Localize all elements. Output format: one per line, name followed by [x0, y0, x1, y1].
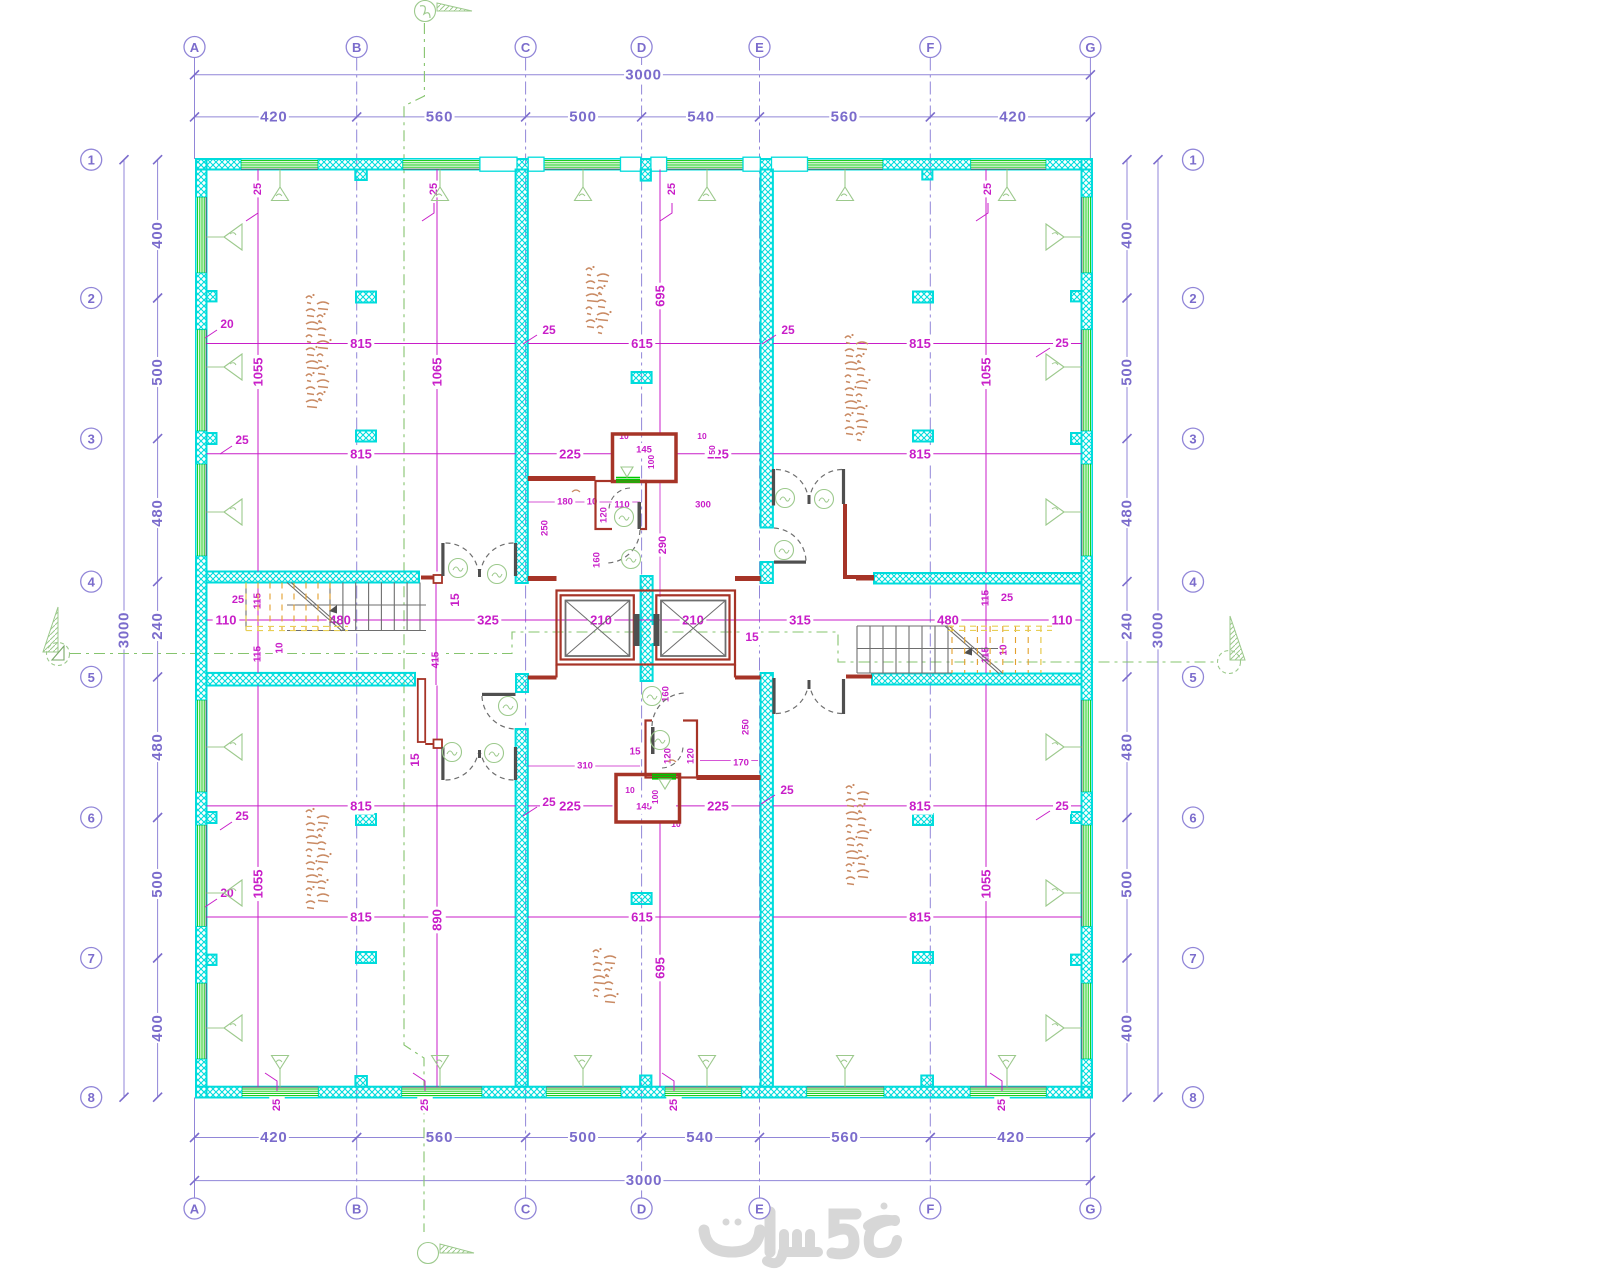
svg-text:F: F: [926, 40, 934, 55]
svg-text:8: 8: [88, 1090, 95, 1105]
svg-text:25: 25: [982, 183, 994, 195]
svg-text:815: 815: [909, 910, 931, 925]
svg-text:G: G: [1085, 1202, 1095, 1217]
svg-text:500: 500: [1119, 358, 1136, 385]
svg-text:110: 110: [1052, 613, 1073, 628]
svg-text:1055: 1055: [979, 870, 994, 899]
svg-text:480: 480: [149, 733, 166, 760]
svg-text:4: 4: [88, 575, 96, 590]
svg-text:7: 7: [88, 951, 95, 966]
svg-text:110: 110: [614, 500, 629, 511]
svg-text:815: 815: [350, 336, 372, 351]
svg-text:15: 15: [629, 747, 641, 758]
svg-text:A: A: [190, 1202, 200, 1217]
svg-text:25: 25: [232, 594, 244, 606]
svg-text:25: 25: [666, 183, 678, 195]
svg-text:6: 6: [88, 811, 95, 826]
svg-text:100: 100: [650, 790, 660, 804]
svg-text:E: E: [755, 1202, 764, 1217]
svg-text:E: E: [755, 40, 764, 55]
svg-text:3: 3: [1189, 432, 1196, 447]
svg-text:180: 180: [557, 497, 573, 508]
svg-text:560: 560: [831, 1129, 858, 1146]
svg-text:480: 480: [937, 613, 959, 628]
svg-text:2: 2: [1189, 291, 1196, 306]
svg-text:400: 400: [1119, 221, 1136, 248]
svg-text:B: B: [352, 1202, 361, 1217]
svg-text:100: 100: [646, 455, 656, 469]
svg-text:4: 4: [1189, 575, 1197, 590]
svg-text:325: 325: [477, 613, 499, 628]
svg-text:250: 250: [741, 719, 752, 735]
svg-text:1065: 1065: [430, 358, 445, 387]
svg-text:480: 480: [149, 499, 166, 526]
svg-text:815: 815: [350, 910, 372, 925]
svg-text:500: 500: [149, 870, 166, 897]
svg-text:7: 7: [1189, 951, 1196, 966]
svg-text:110: 110: [216, 613, 237, 628]
svg-text:25: 25: [235, 433, 249, 447]
svg-text:890: 890: [430, 909, 445, 931]
svg-text:25: 25: [996, 1099, 1008, 1111]
svg-text:25: 25: [419, 1099, 431, 1111]
svg-text:15: 15: [408, 753, 422, 767]
svg-text:3: 3: [88, 432, 95, 447]
svg-text:400: 400: [1119, 1014, 1136, 1041]
svg-text:25: 25: [271, 1099, 283, 1111]
svg-text:225: 225: [559, 446, 581, 461]
svg-text:25: 25: [1055, 799, 1069, 813]
svg-text:3000: 3000: [626, 1172, 663, 1189]
svg-text:815: 815: [909, 446, 931, 461]
svg-text:25: 25: [668, 1099, 680, 1111]
svg-text:560: 560: [426, 108, 453, 125]
svg-text:240: 240: [149, 612, 166, 639]
svg-text:20: 20: [220, 317, 234, 331]
svg-text:25: 25: [1001, 592, 1013, 604]
svg-text:A: A: [190, 40, 200, 55]
svg-text:D: D: [637, 1202, 646, 1217]
svg-text:540: 540: [686, 1129, 713, 1146]
svg-text:5: 5: [88, 670, 95, 685]
svg-text:6: 6: [1189, 811, 1196, 826]
svg-text:695: 695: [653, 957, 668, 979]
svg-text:25: 25: [781, 323, 795, 337]
svg-text:1: 1: [1189, 153, 1196, 168]
svg-text:420: 420: [997, 1129, 1024, 1146]
svg-text:480: 480: [1119, 499, 1136, 526]
svg-text:25: 25: [1055, 336, 1069, 350]
svg-text:290: 290: [657, 536, 669, 554]
svg-text:1055: 1055: [979, 358, 994, 387]
svg-text:695: 695: [653, 285, 668, 307]
svg-text:B: B: [352, 40, 361, 55]
svg-text:560: 560: [831, 108, 858, 125]
svg-text:25: 25: [252, 183, 264, 195]
svg-text:240: 240: [1119, 612, 1136, 639]
svg-text:10: 10: [625, 785, 635, 795]
svg-text:8: 8: [1189, 1090, 1196, 1105]
svg-text:815: 815: [909, 798, 931, 813]
svg-text:615: 615: [631, 336, 653, 351]
svg-text:815: 815: [350, 798, 372, 813]
svg-text:50: 50: [707, 445, 717, 455]
svg-text:25: 25: [235, 809, 249, 823]
svg-text:315: 315: [789, 613, 811, 628]
svg-text:250: 250: [540, 520, 551, 536]
svg-text:10: 10: [697, 431, 707, 441]
svg-text:560: 560: [426, 1129, 453, 1146]
svg-text:15: 15: [745, 630, 759, 644]
svg-text:170: 170: [733, 758, 749, 769]
svg-text:400: 400: [149, 221, 166, 248]
svg-text:F: F: [926, 1202, 934, 1217]
svg-text:540: 540: [687, 108, 714, 125]
svg-text:15: 15: [448, 593, 462, 607]
svg-text:2: 2: [88, 291, 95, 306]
svg-text:G: G: [1085, 40, 1095, 55]
svg-text:420: 420: [260, 1129, 287, 1146]
svg-text:3000: 3000: [1150, 612, 1167, 649]
svg-text:420: 420: [260, 108, 287, 125]
svg-text:3000: 3000: [116, 612, 133, 649]
svg-text:3000: 3000: [625, 66, 662, 83]
svg-text:225: 225: [559, 798, 581, 813]
svg-text:1055: 1055: [251, 358, 266, 387]
svg-text:120: 120: [686, 748, 697, 764]
svg-text:500: 500: [1119, 870, 1136, 897]
svg-text:500: 500: [149, 358, 166, 385]
svg-text:C: C: [521, 1202, 531, 1217]
svg-text:815: 815: [909, 336, 931, 351]
svg-text:500: 500: [569, 108, 596, 125]
svg-text:C: C: [521, 40, 531, 55]
svg-text:500: 500: [569, 1129, 596, 1146]
svg-text:10: 10: [275, 642, 286, 654]
svg-text:25: 25: [780, 783, 794, 797]
svg-text:400: 400: [149, 1014, 166, 1041]
svg-text:1055: 1055: [251, 870, 266, 899]
svg-text:225: 225: [707, 798, 729, 813]
svg-text:310: 310: [577, 761, 593, 772]
svg-text:480: 480: [1119, 733, 1136, 760]
svg-text:1: 1: [88, 153, 95, 168]
svg-text:815: 815: [350, 446, 372, 461]
svg-text:5: 5: [1189, 670, 1196, 685]
svg-text:10: 10: [999, 644, 1010, 656]
svg-text:210: 210: [682, 613, 704, 628]
svg-text:25: 25: [542, 795, 556, 809]
svg-text:160: 160: [592, 552, 603, 568]
svg-text:D: D: [637, 40, 646, 55]
svg-text:420: 420: [999, 108, 1026, 125]
svg-text:615: 615: [631, 910, 653, 925]
svg-text:300: 300: [695, 500, 711, 511]
svg-text:120: 120: [599, 507, 610, 523]
svg-text:25: 25: [542, 323, 556, 337]
